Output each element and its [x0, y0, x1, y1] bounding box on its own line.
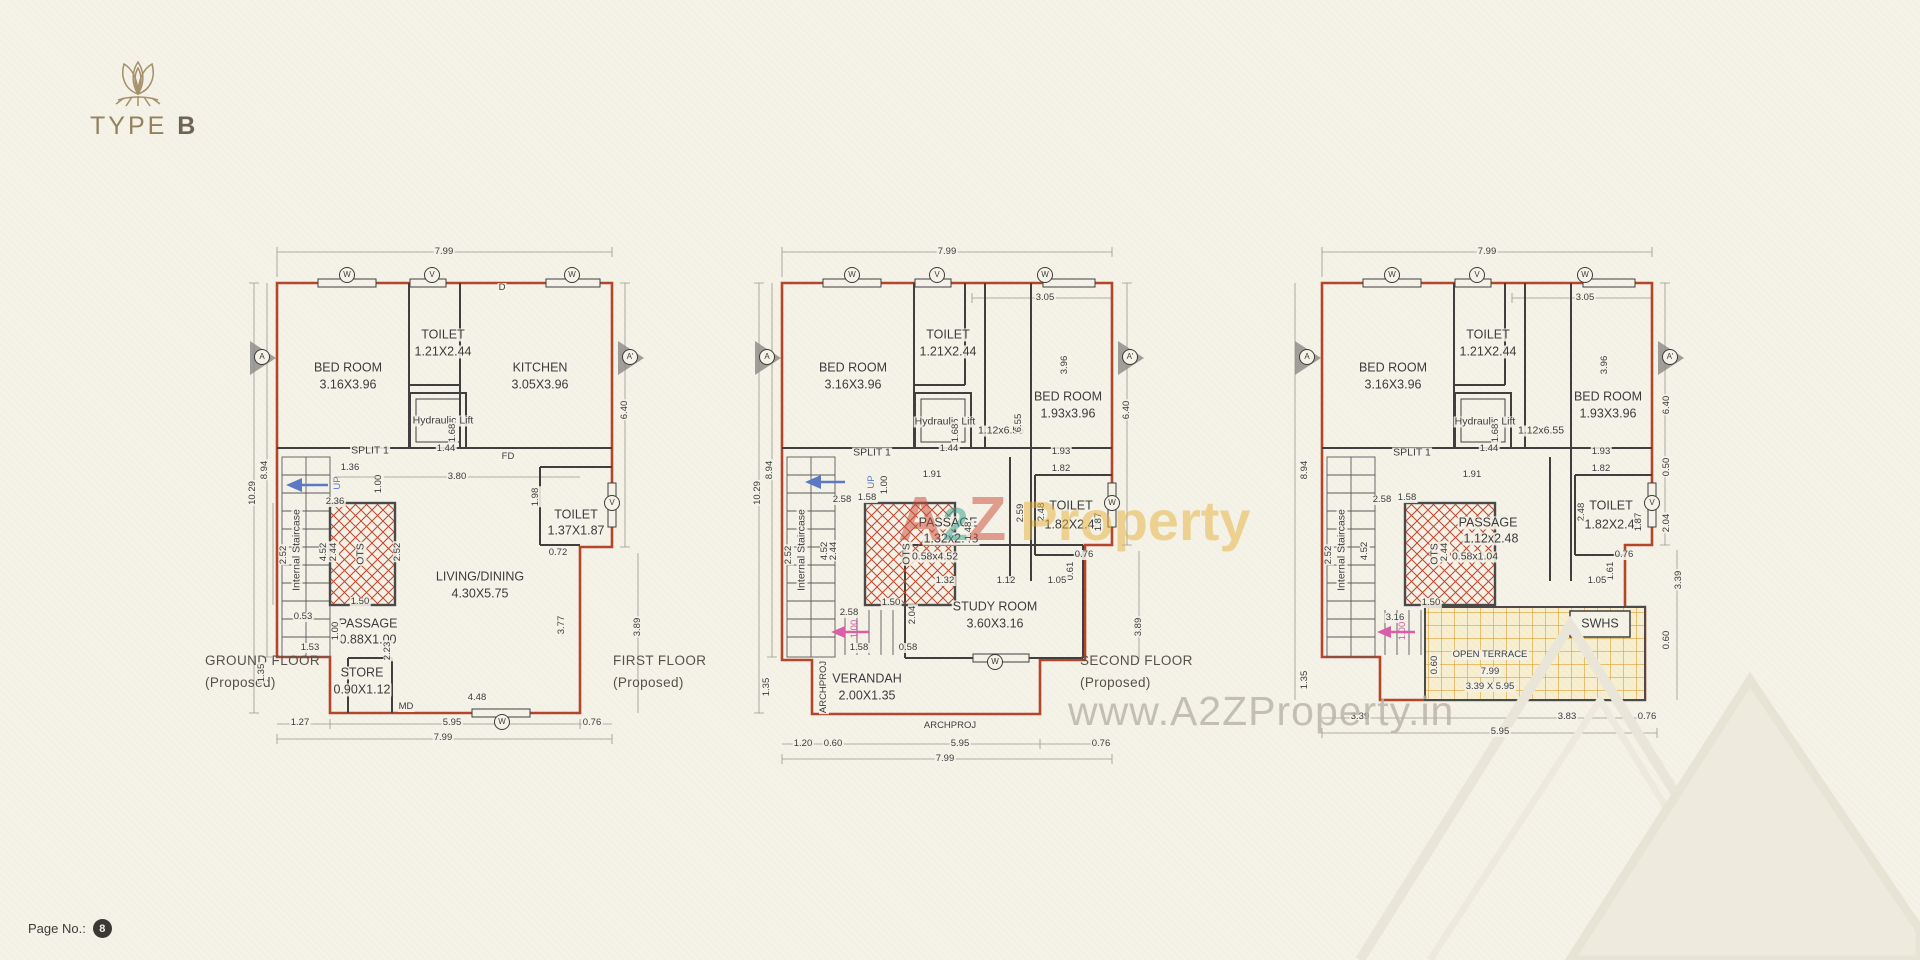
- dim-label: 1.58: [1397, 493, 1418, 503]
- room-label: VERANDAH: [831, 672, 902, 685]
- first-floor-plan: 7.99WVW3.05BED ROOM3.16X3.96TOILET1.21X2…: [745, 235, 1165, 780]
- opening-tag: V: [424, 267, 440, 283]
- dim-label: 3.89: [1134, 617, 1144, 638]
- dim-label: 1.58: [857, 493, 878, 503]
- room-label: PASSAGE: [1458, 516, 1519, 529]
- floor-title: SECOND FLOOR: [1080, 650, 1193, 672]
- page-number-badge: 9: [1873, 919, 1892, 938]
- dim-label: 0.60: [1430, 655, 1440, 676]
- opening-tag: W: [844, 267, 860, 283]
- opening-tag: W: [1037, 267, 1053, 283]
- dim-label: 10.29: [753, 480, 763, 506]
- dim-label: SPLIT 1: [852, 447, 892, 458]
- second-floor-caption: SECOND FLOOR (Proposed): [1080, 650, 1193, 693]
- dim-label: 2.44: [1440, 542, 1450, 563]
- dim-label: 1.44: [1479, 444, 1500, 454]
- room-label: PASSAGE: [338, 617, 399, 630]
- dim-label: 7.99: [937, 247, 958, 257]
- room-label: Internal Staircase: [796, 508, 807, 592]
- room-label: SWHS: [1580, 617, 1620, 630]
- page-number-badge: 8: [93, 919, 112, 938]
- floor-subtitle: (Proposed): [613, 672, 706, 694]
- dim-label: 1.87: [1634, 512, 1644, 533]
- dim-label: 1.36: [340, 463, 361, 473]
- dim-label: 2.36: [325, 497, 346, 507]
- room-label: BED ROOM: [818, 361, 888, 374]
- dim-label: 1.12x2.48: [1463, 532, 1520, 545]
- floor-subtitle: (Proposed): [1080, 672, 1193, 694]
- dim-label: 3.96: [1600, 355, 1610, 376]
- dim-label: 1.05: [1587, 576, 1608, 586]
- dim-label: 7.99: [1480, 667, 1501, 677]
- dim-label: FD: [501, 452, 516, 462]
- dim-label: 2.04: [908, 605, 918, 626]
- dim-label: 1.12: [996, 576, 1017, 586]
- dim-label: 1.50: [881, 598, 902, 608]
- page-number-label: Page No.:: [28, 921, 86, 936]
- dim-label: 6.55: [1014, 413, 1024, 434]
- ground-floor-plan: 7.99WVDWBED ROOM3.16X3.96TOILET1.21X2.44…: [240, 235, 660, 780]
- dim-label: 6.40: [1122, 400, 1132, 421]
- dim-label: D: [498, 283, 507, 293]
- dim-label: 3.16X3.96: [824, 378, 883, 391]
- dim-label: 1.98: [531, 487, 541, 508]
- section-marker: A': [622, 349, 638, 365]
- opening-tag: W: [339, 267, 355, 283]
- dim-label: 3.05X3.96: [511, 378, 570, 391]
- dim-label: 3.89: [633, 617, 643, 638]
- opening-tag: W: [1384, 267, 1400, 283]
- dim-label: 1.21X2.44: [919, 345, 978, 358]
- room-label: OTS: [355, 542, 366, 566]
- dim-label: 7.99: [1477, 247, 1498, 257]
- dim-label: 1.20: [793, 739, 814, 749]
- room-label: Internal Staircase: [1336, 508, 1347, 592]
- dim-label: 2.52: [393, 542, 403, 563]
- dim-label: 1.00: [850, 619, 860, 640]
- dim-label: 1.53: [300, 643, 321, 653]
- dim-label: 1.93: [1591, 447, 1612, 457]
- section-marker: A': [1662, 349, 1678, 365]
- dim-label: 5.95: [950, 739, 971, 749]
- dim-label: 8.94: [1300, 460, 1310, 481]
- dim-label: 0.58x1.04: [1451, 551, 1499, 562]
- dim-label: 3.80: [447, 472, 468, 482]
- dim-label: 0.58x4.52: [911, 551, 959, 562]
- dim-label: 1.58: [849, 643, 870, 653]
- dim-label: 0.53: [293, 612, 314, 622]
- page-number-right: Page No.: 9: [1808, 919, 1892, 938]
- dim-label: 3.16X3.96: [319, 378, 378, 391]
- dim-label: 7.99: [433, 733, 454, 743]
- dim-label: 2.44: [829, 541, 839, 562]
- dim-label: 3.60X3.16: [966, 617, 1025, 630]
- dim-label: 1.68: [951, 423, 961, 444]
- dim-label: 4.30X5.75: [451, 587, 510, 600]
- opening-tag: W: [494, 714, 510, 730]
- dim-label: 1.93x3.96: [1040, 407, 1097, 420]
- room-label: TOILET: [420, 328, 466, 341]
- dim-label: 1.32: [935, 576, 956, 586]
- dim-label: 2.52: [1324, 545, 1334, 566]
- dim-label: 1.44: [436, 444, 457, 454]
- dim-label: 1.61: [1606, 561, 1616, 582]
- dim-label: 1.37X1.87: [547, 524, 606, 537]
- dim-label: 1.00: [331, 621, 341, 642]
- dim-label: 0.60: [1662, 630, 1672, 651]
- room-label: Hydraulic Lift: [1454, 416, 1517, 427]
- lotus-icon: [110, 56, 166, 114]
- dim-label: 5.95: [1490, 727, 1511, 737]
- dim-label: 2.59: [1016, 503, 1026, 524]
- room-label: BED ROOM: [1358, 361, 1428, 374]
- dim-label: 1.93X3.96: [1579, 407, 1638, 420]
- dim-label: 3.96: [1060, 355, 1070, 376]
- dim-label: 1.82: [1591, 464, 1612, 474]
- dim-label: 3.05: [1035, 293, 1056, 303]
- opening-tag: V: [929, 267, 945, 283]
- second-floor-drawing: [1285, 235, 1705, 780]
- dim-label: 2.58: [1372, 495, 1393, 505]
- room-label: TOILET: [1588, 499, 1634, 512]
- dim-label: 1.21X2.44: [414, 345, 473, 358]
- page-number-label: Page No.:: [1808, 921, 1866, 936]
- room-label: OPEN TERRACE: [1452, 650, 1529, 660]
- opening-tag: V: [1644, 495, 1660, 511]
- logo-type-label: TYPE B: [90, 112, 198, 141]
- up-arrow: [286, 478, 328, 492]
- second-floor-plan: 7.99WVW3.05BED ROOM3.16X3.96TOILET1.21X2…: [1285, 235, 1705, 780]
- page-number-left: Page No.: 8: [28, 919, 112, 938]
- dim-label: ARCHPROJ: [923, 721, 977, 731]
- dim-label: 1.48: [964, 521, 974, 542]
- dim-label: 1.12x6.55: [1517, 425, 1565, 436]
- dim-label: 6.40: [1662, 395, 1672, 416]
- dim-label: 1.82: [1051, 464, 1072, 474]
- opening-tag: W: [1577, 267, 1593, 283]
- dim-label: 1.44: [939, 444, 960, 454]
- dim-label: 3.83: [1557, 712, 1578, 722]
- room-label: STUDY ROOM: [952, 600, 1039, 613]
- dim-label: 1.00: [880, 475, 890, 496]
- dim-label: 1.50: [350, 597, 371, 607]
- dim-label: 3.39 X 5.95: [1465, 682, 1516, 692]
- dim-label: 1.35: [257, 663, 267, 684]
- floor-title: FIRST FLOOR: [613, 650, 706, 672]
- room-label: STORE: [340, 666, 385, 679]
- dim-label: 2.52: [279, 545, 289, 566]
- section-marker: A: [254, 349, 270, 365]
- room-label: Hydraulic Lift: [412, 415, 475, 426]
- opening-tag: W: [987, 654, 1003, 670]
- room-label: TOILET: [1048, 499, 1094, 512]
- dim-label: 7.99: [935, 754, 956, 764]
- dim-label: 1.50: [1421, 598, 1442, 608]
- opening-tag: V: [604, 495, 620, 511]
- room-label: BED ROOM: [1573, 390, 1643, 403]
- dim-label: 2.52: [784, 545, 794, 566]
- room-label: LIVING/DINING: [435, 570, 525, 583]
- dim-label: 6.40: [620, 400, 630, 421]
- room-label: KITCHEN: [512, 361, 569, 374]
- dim-label: 5.95: [442, 718, 463, 728]
- room-label: TOILET: [1465, 328, 1511, 341]
- dim-label: 1.00: [374, 474, 384, 495]
- dim-label: 1.91: [1462, 470, 1483, 480]
- dim-label: 0.76: [582, 718, 603, 728]
- dim-label: 1.68: [1491, 423, 1501, 444]
- dim-label: 1.91: [922, 470, 943, 480]
- dim-label: 3.39: [1674, 570, 1684, 591]
- dim-label: 0.76: [1091, 739, 1112, 749]
- dim-label: 7.99: [434, 247, 455, 257]
- dim-label: 1.35: [1300, 670, 1310, 691]
- opening-tag: V: [1469, 267, 1485, 283]
- dim-label: 3.77: [557, 615, 567, 636]
- room-label: TOILET: [925, 328, 971, 341]
- dim-label: SPLIT 1: [1392, 447, 1432, 458]
- section-marker: A': [1122, 349, 1138, 365]
- section-marker: A: [759, 349, 775, 365]
- dim-label: 1.35: [762, 677, 772, 698]
- dim-label: 0.58: [898, 643, 919, 653]
- dim-label: 1.87: [1094, 512, 1104, 533]
- dim-label: 1.93: [1051, 447, 1072, 457]
- dim-label: 2.04: [1662, 513, 1672, 534]
- dim-label: 1.00: [1398, 621, 1408, 642]
- dim-label: 1.68: [448, 423, 458, 444]
- dim-label: 0.61: [1066, 561, 1076, 582]
- dim-label: UP: [867, 474, 877, 489]
- dim-label: 1.05: [1047, 576, 1068, 586]
- dim-label: UP: [333, 475, 343, 490]
- room-label: BED ROOM: [1033, 390, 1103, 403]
- dim-label: 2.58: [839, 608, 860, 618]
- dim-label: 3.05: [1575, 293, 1596, 303]
- dim-label: 10.29: [248, 480, 258, 506]
- section-marker: A: [1299, 349, 1315, 365]
- dim-label: 2.58: [832, 495, 853, 505]
- dim-label: 0.90X1.12: [333, 683, 392, 696]
- first-floor-drawing: [745, 235, 1165, 780]
- dim-label: 2.44: [329, 542, 339, 563]
- dim-label: 0.76: [1614, 550, 1635, 560]
- room-label: TOILET: [553, 508, 599, 521]
- dim-label: ARCHPROJ: [819, 660, 829, 714]
- dim-label: 8.94: [260, 460, 270, 481]
- room-label: Internal Staircase: [291, 508, 302, 592]
- dim-label: MD: [398, 702, 415, 712]
- room-label: BED ROOM: [313, 361, 383, 374]
- dim-label: 1.21X2.44: [1459, 345, 1518, 358]
- dim-label: 3.39: [1350, 712, 1371, 722]
- dim-label: 0.72: [548, 548, 569, 558]
- dim-label: SPLIT 1: [350, 445, 390, 456]
- dim-label: 0.76: [1074, 550, 1095, 560]
- opening-tag: W: [1104, 495, 1120, 511]
- room-label: Hydraulic Lift: [914, 416, 977, 427]
- dim-label: 8.94: [765, 460, 775, 481]
- first-floor-caption: FIRST FLOOR (Proposed): [613, 650, 706, 693]
- dim-label: 1.27: [290, 718, 311, 728]
- dim-label: 0.60: [823, 739, 844, 749]
- dim-label: 4.48: [467, 693, 488, 703]
- brochure-page: TYPE B: [0, 0, 1920, 960]
- dim-label: 0.76: [1637, 712, 1658, 722]
- dim-label: 2.00X1.35: [838, 689, 897, 702]
- opening-tag: W: [564, 267, 580, 283]
- dim-label: 2.23: [383, 641, 393, 662]
- dim-label: 3.16X3.96: [1364, 378, 1423, 391]
- dim-label: 4.52: [1360, 541, 1370, 562]
- dim-label: 0.50: [1662, 457, 1672, 478]
